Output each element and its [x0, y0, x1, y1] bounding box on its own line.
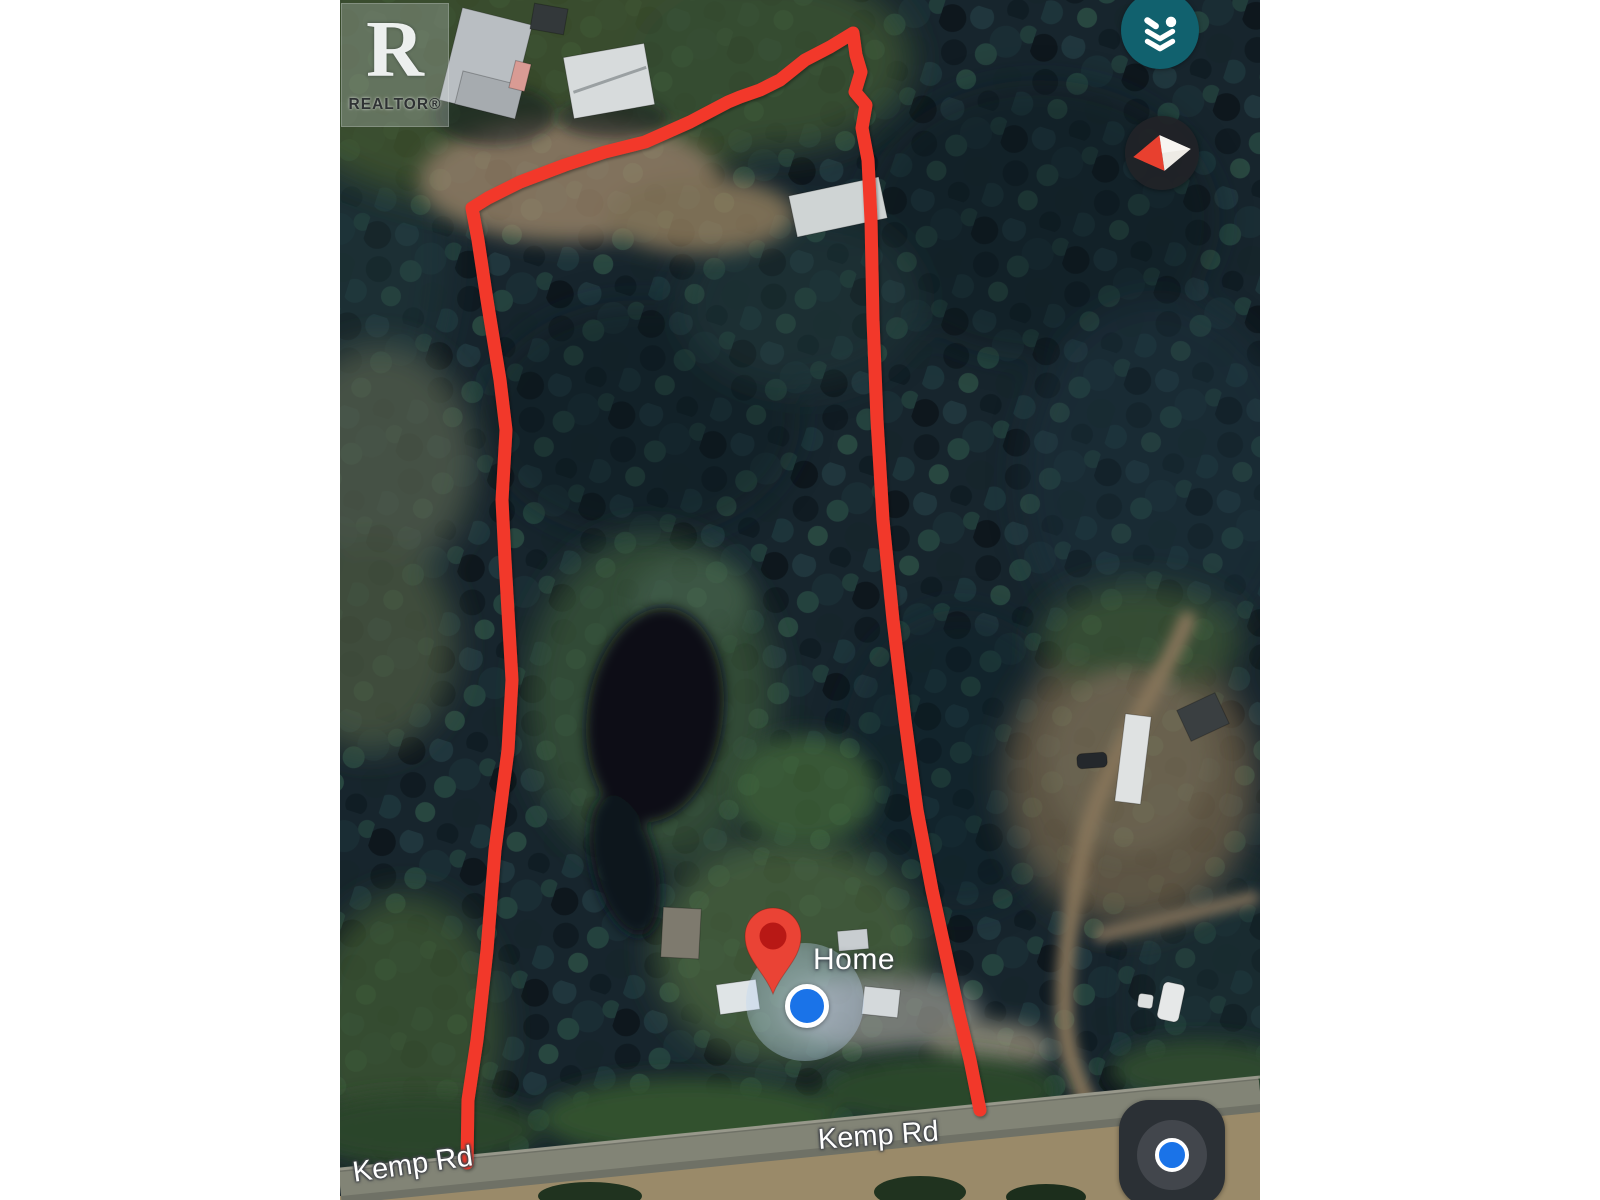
home-marker-label: Home: [813, 943, 895, 977]
compass-needle-icon: [1131, 131, 1193, 175]
realtor-watermark-text: REALTOR®: [349, 96, 442, 114]
home-pin[interactable]: [741, 906, 805, 996]
screenshot: R REALTOR®: [0, 0, 1600, 1200]
compass-button[interactable]: [1125, 116, 1199, 190]
satellite-map[interactable]: R REALTOR®: [340, 0, 1260, 1200]
layers-icon: [1139, 13, 1181, 55]
realtor-logo-icon: R: [366, 4, 424, 96]
current-location-dot: [785, 984, 829, 1028]
my-location-button[interactable]: [1119, 1100, 1225, 1200]
realtor-watermark: R REALTOR®: [341, 3, 449, 127]
my-location-dot-icon: [1155, 1138, 1189, 1172]
